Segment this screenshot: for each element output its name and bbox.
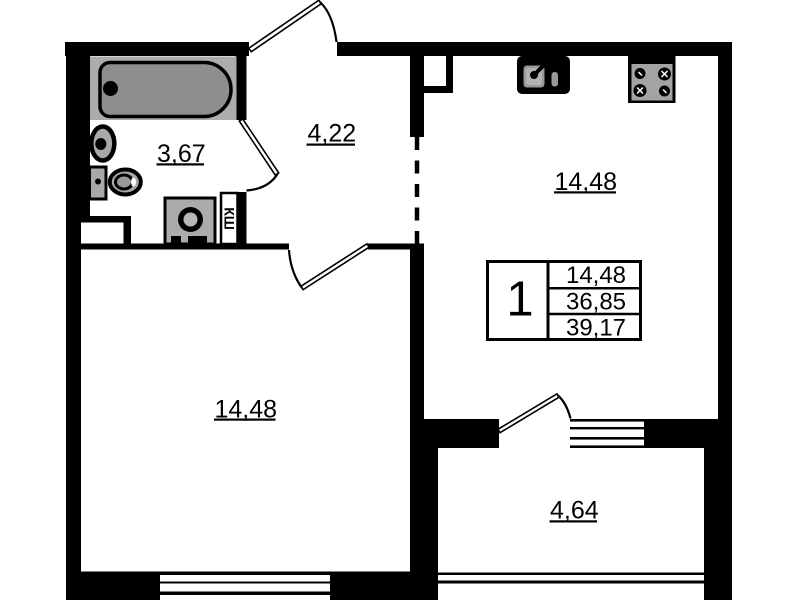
svg-text:КШ: КШ (222, 207, 238, 230)
svg-text:39,17: 39,17 (566, 314, 626, 341)
svg-text:14,48: 14,48 (566, 262, 626, 289)
svg-text:4,22: 4,22 (308, 120, 357, 148)
svg-text:36,85: 36,85 (566, 288, 626, 315)
svg-text:1: 1 (506, 273, 533, 327)
